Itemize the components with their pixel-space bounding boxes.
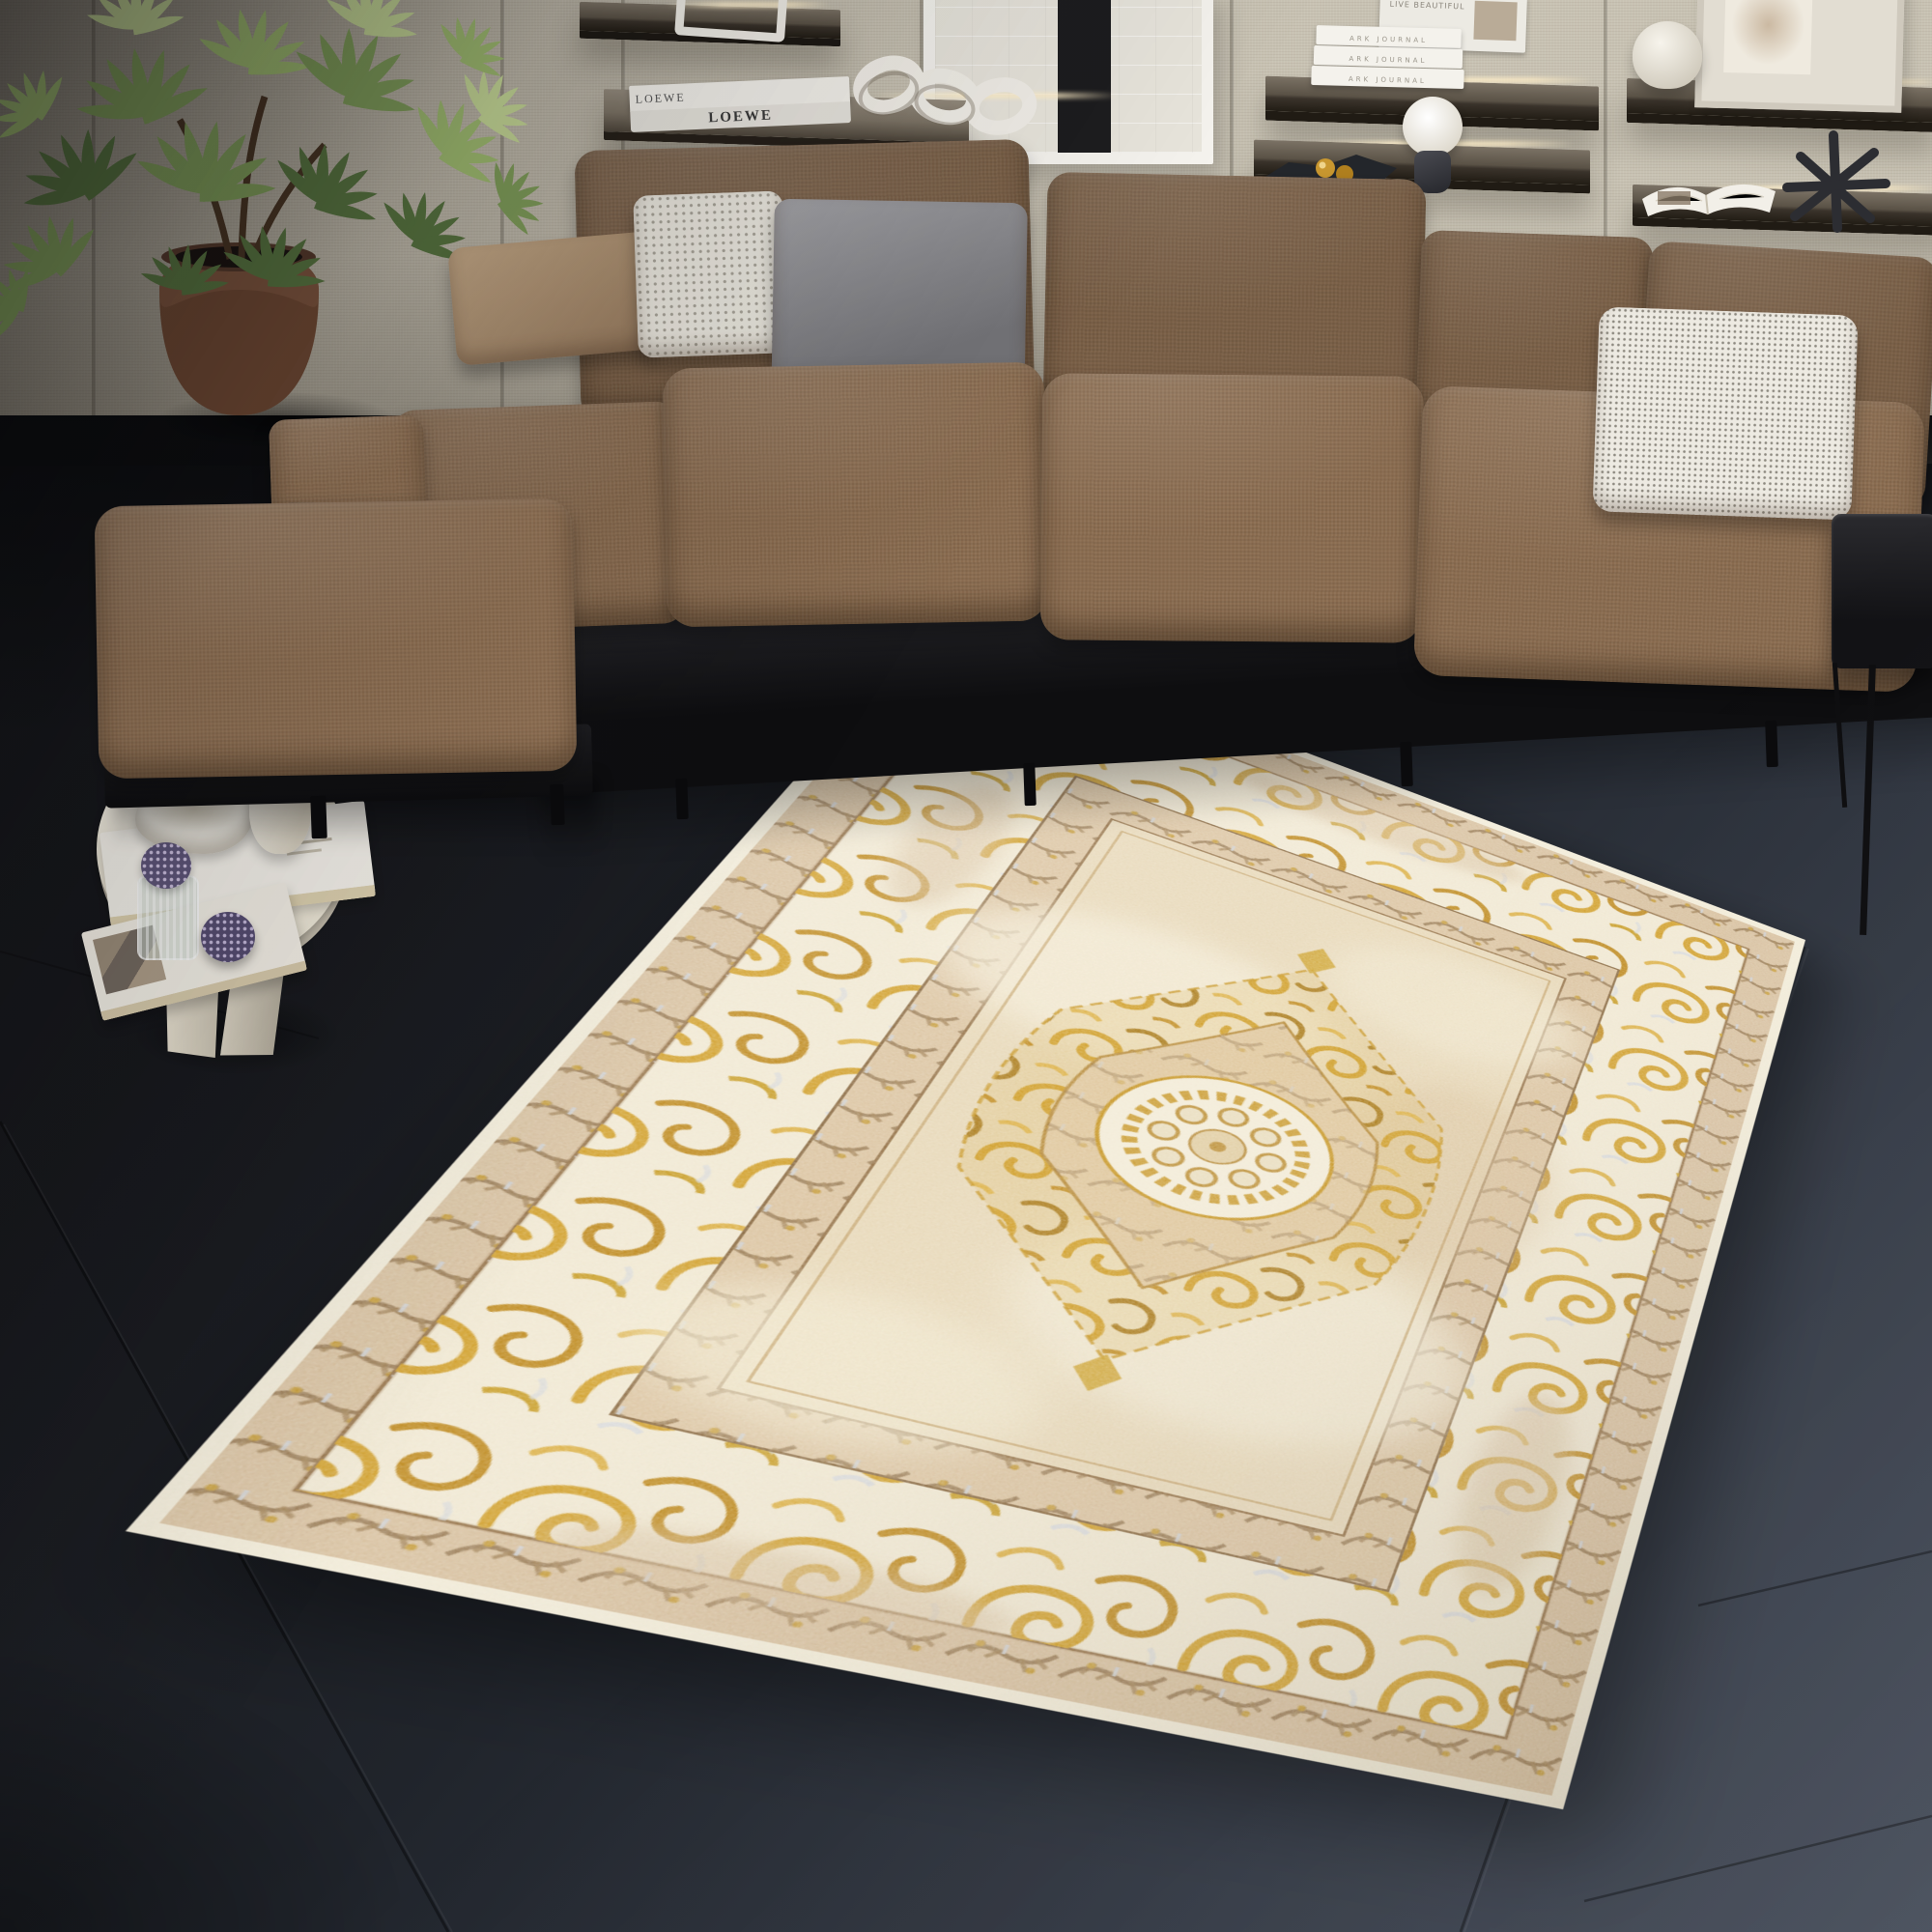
- chaise-cushion: [95, 498, 578, 780]
- sofa-leg: [310, 796, 327, 839]
- pillow-houndstooth: [1592, 306, 1858, 520]
- lavender-pom: [201, 912, 255, 962]
- potted-plant: .lf1{fill:#55713e}.lf2{fill:#7d9a58}.lf3…: [0, 0, 599, 464]
- seat-cushion: [663, 362, 1049, 628]
- sofa-leg: [1023, 763, 1037, 806]
- pillow-white-knit: [633, 190, 788, 357]
- sofa-leg: [675, 779, 688, 819]
- side-tray-table: [1832, 514, 1932, 668]
- sofa-leg: [550, 784, 564, 825]
- seat-cushion: [1040, 373, 1424, 642]
- sofa-leg: [1400, 742, 1413, 786]
- pillow-tan: [447, 231, 660, 366]
- lavender-pom: [141, 842, 191, 889]
- living-room-scene: LOEWE LOEWE LIVE BEAUTIFUL ARK JOURNAL A…: [0, 0, 1932, 1932]
- sofa-leg: [1765, 721, 1778, 767]
